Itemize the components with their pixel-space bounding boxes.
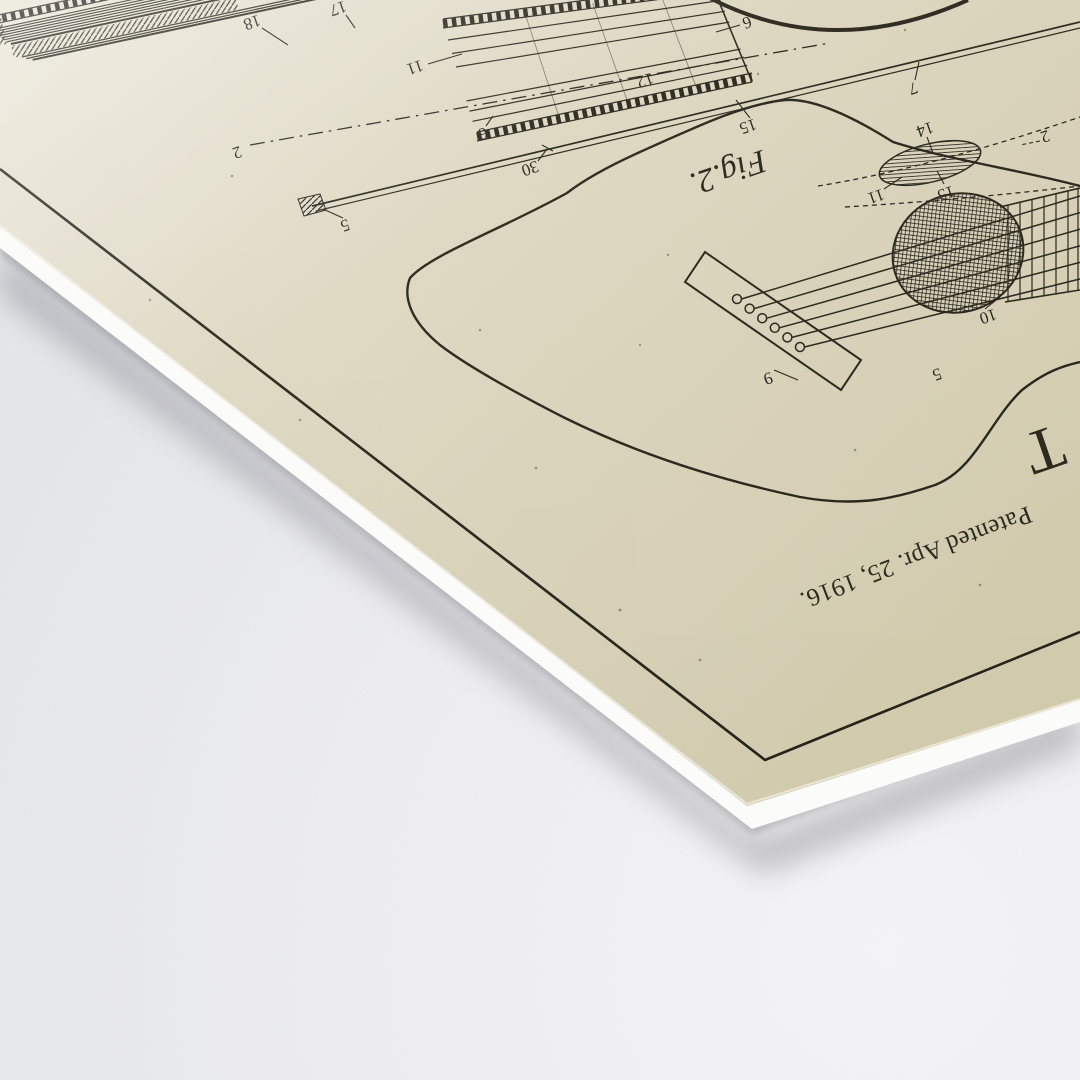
patent-print-photo: 18 17 11 12 6 15 6 30 5 2 7 14 15 11 2 1… [0, 0, 1080, 1080]
photo-canvas: 18 17 11 12 6 15 6 30 5 2 7 14 15 11 2 1… [0, 0, 1080, 1080]
